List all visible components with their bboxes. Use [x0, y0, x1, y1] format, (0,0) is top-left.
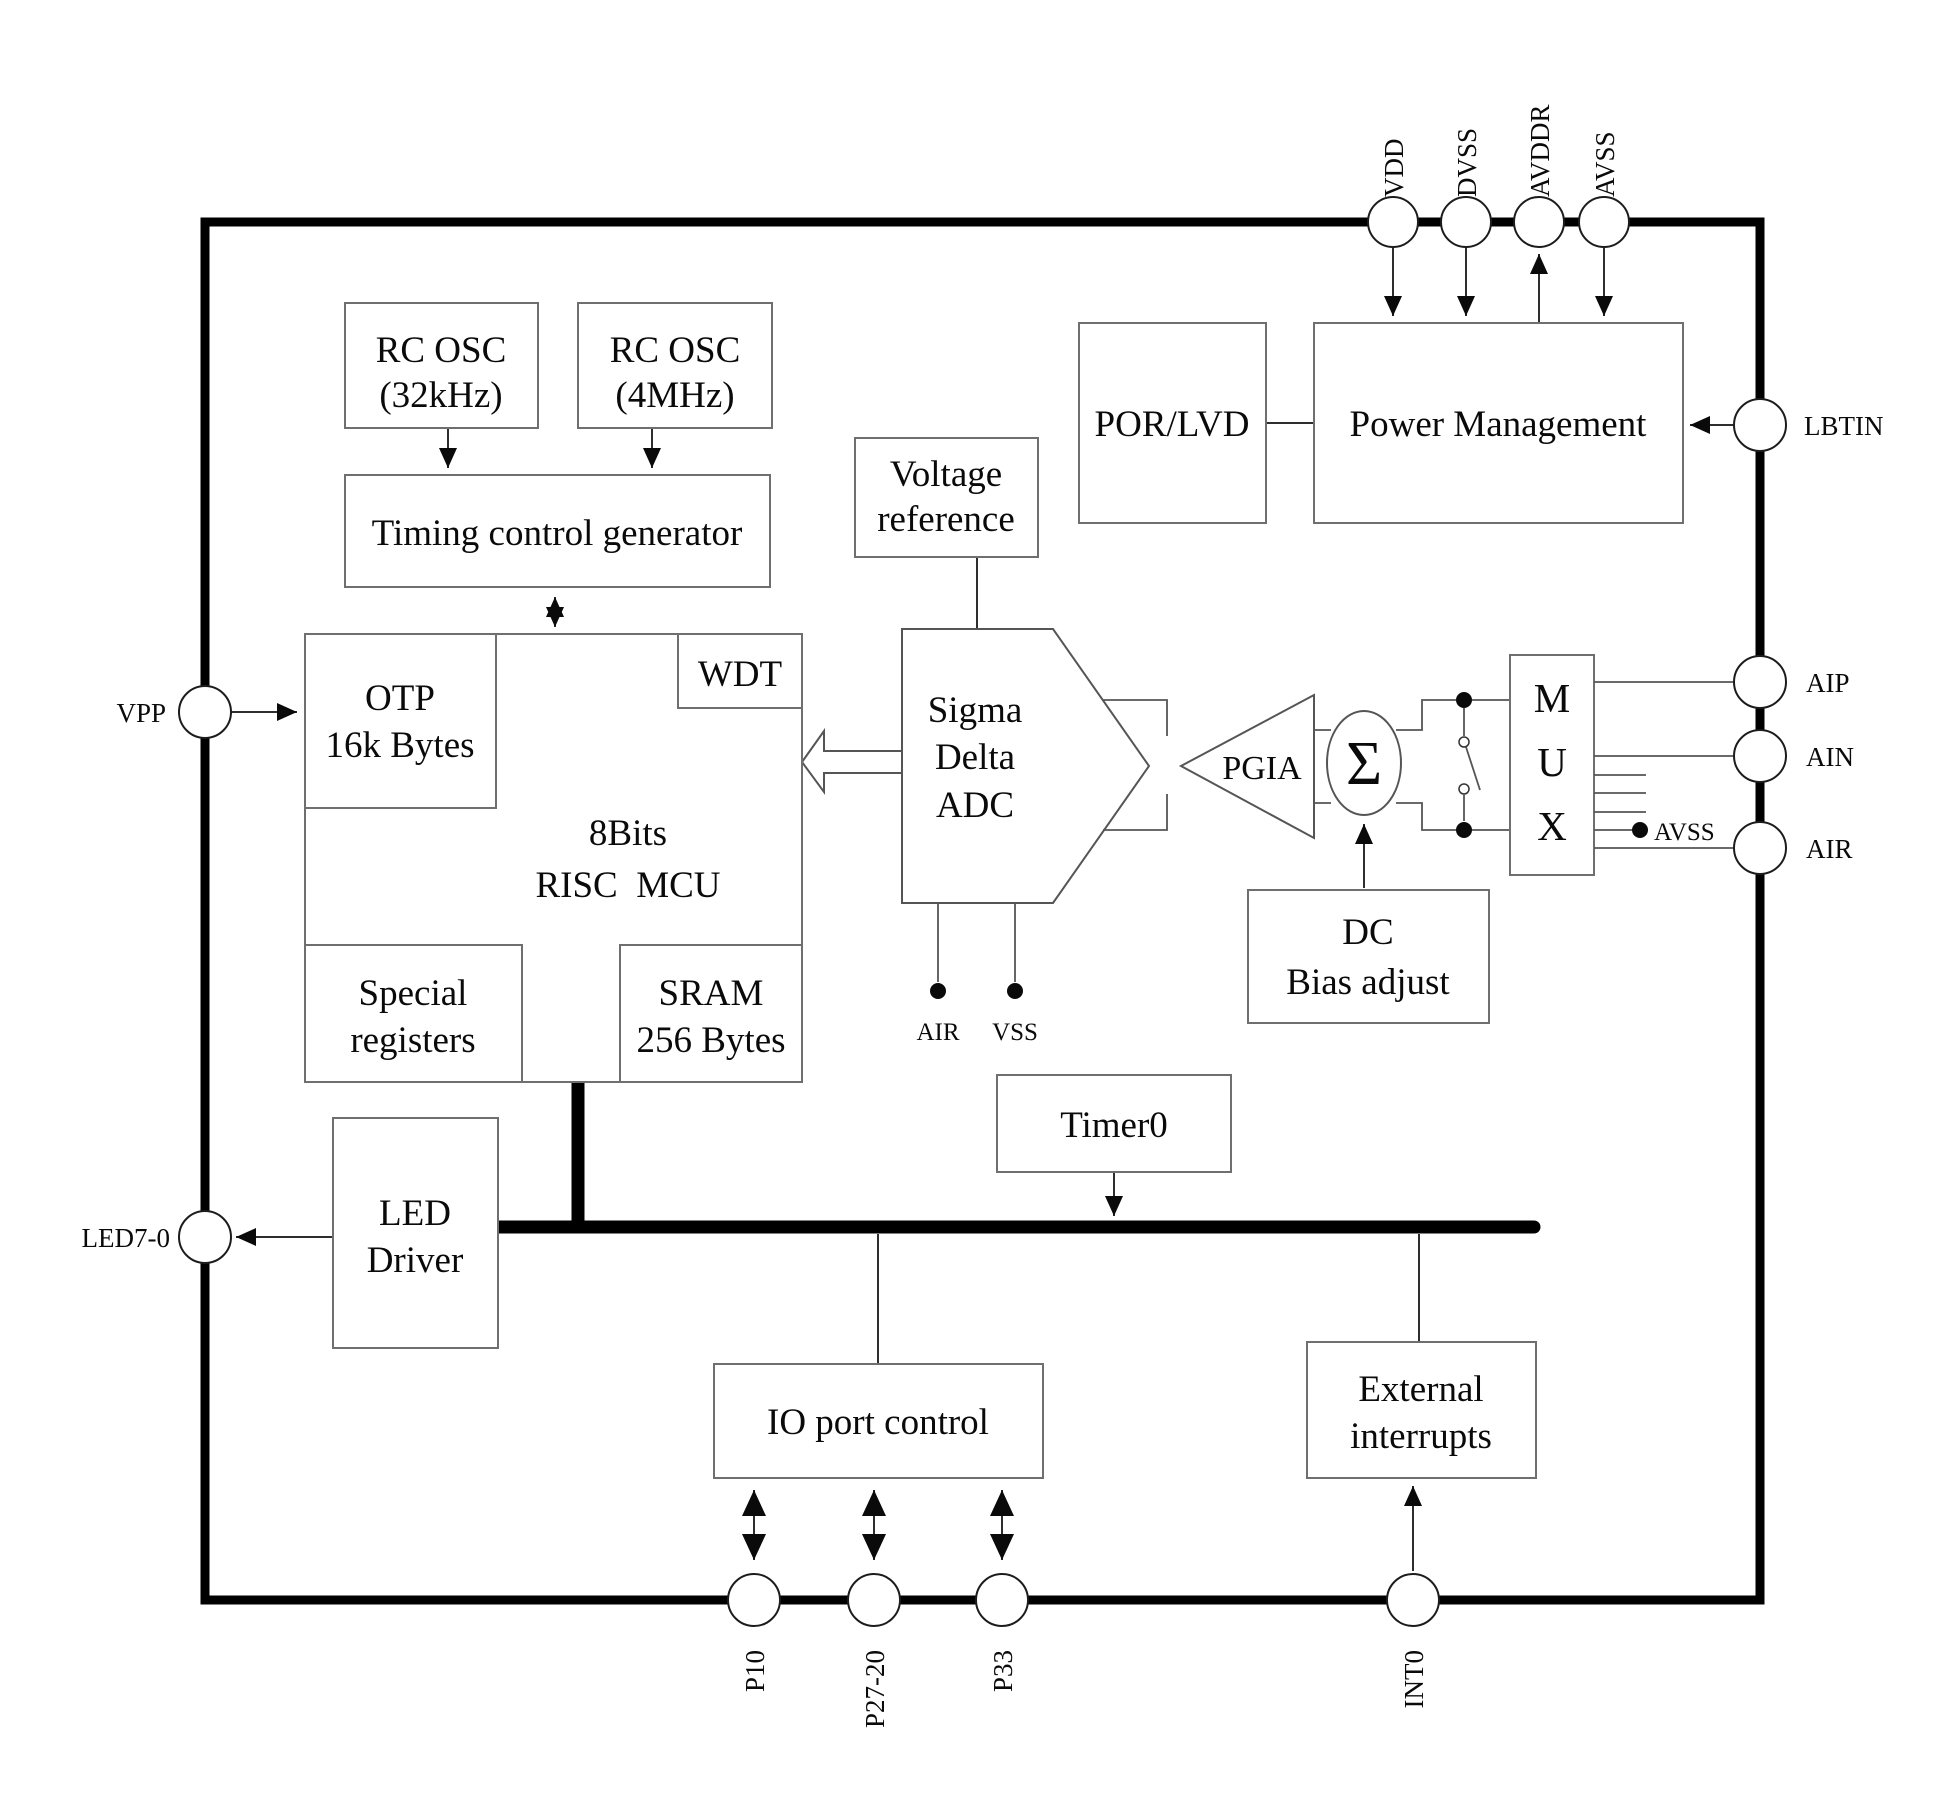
- led-driver-label-2: Driver: [367, 1240, 464, 1281]
- adc-vss-label: VSS: [992, 1019, 1038, 1046]
- pin-p27-20-pad: [848, 1574, 900, 1626]
- pin-air-label: AIR: [1806, 834, 1853, 864]
- pin-avddr-label: AVDDR: [1525, 104, 1555, 197]
- otp-label-2: 16k Bytes: [325, 725, 474, 766]
- pin-p33-label: P33: [988, 1650, 1018, 1692]
- pin-aip: AIP: [1734, 656, 1850, 708]
- block-external-interrupts: External interrupts: [1307, 1342, 1536, 1478]
- voltage-reference-label-2: reference: [877, 499, 1015, 540]
- block-por-lvd: POR/LVD: [1079, 323, 1266, 523]
- adc-to-mcu-block-arrow-icon: [802, 731, 902, 792]
- pin-lbtin-label: LBTIN: [1804, 411, 1883, 441]
- sigma-symbol: Σ: [1346, 730, 1382, 798]
- adc-label-1: Sigma: [928, 690, 1023, 731]
- rc-osc-32k-label-2: (32kHz): [379, 375, 502, 416]
- pin-avss: AVSS: [1579, 131, 1629, 247]
- timer0-label: Timer0: [1060, 1105, 1168, 1146]
- adc-air-label: AIR: [916, 1019, 959, 1046]
- pin-aip-label: AIP: [1806, 668, 1850, 698]
- rc-osc-4m-label-1: RC OSC: [610, 330, 741, 371]
- pin-dvss-label: DVSS: [1452, 128, 1482, 197]
- adc-label-2: Delta: [935, 737, 1015, 778]
- switch-contact-bottom-icon: [1459, 784, 1469, 794]
- pin-p27-20-label: P27-20: [860, 1650, 890, 1728]
- sigma-switch-wire-bottom: [1396, 803, 1456, 830]
- pin-vdd: VDD: [1368, 139, 1418, 248]
- block-voltage-reference: Voltage reference: [855, 438, 1038, 557]
- pin-p27-20: P27-20: [848, 1574, 900, 1728]
- sram-label-1: SRAM: [659, 973, 764, 1014]
- voltage-reference-label-1: Voltage: [890, 454, 1002, 495]
- adc-air-node-icon: [930, 983, 946, 999]
- diagram-canvas: RC OSC (32kHz) RC OSC (4MHz) Timing cont…: [0, 0, 1944, 1808]
- pin-p10-pad: [728, 1574, 780, 1626]
- special-registers-label-2: registers: [350, 1020, 475, 1061]
- chip-block-diagram: RC OSC (32kHz) RC OSC (4MHz) Timing cont…: [0, 0, 1944, 1808]
- block-io-port-control: IO port control: [714, 1364, 1043, 1478]
- pin-ain-label: AIN: [1806, 742, 1854, 772]
- led-driver-label-1: LED: [379, 1193, 451, 1234]
- pin-avddr-pad: [1514, 197, 1564, 247]
- block-dc-bias: DC Bias adjust: [1248, 890, 1489, 1023]
- pin-lbtin: LBTIN: [1734, 399, 1883, 451]
- timing-control-label: Timing control generator: [372, 513, 743, 554]
- mux-label-m: M: [1534, 675, 1570, 721]
- mux-avss-label: AVSS: [1654, 819, 1715, 846]
- external-interrupts-box: [1307, 1342, 1536, 1478]
- mcu-label-2: RISC MCU: [535, 865, 720, 906]
- pin-p10-label: P10: [740, 1650, 770, 1692]
- pin-int0: INT0: [1387, 1574, 1439, 1708]
- switch-blade-icon: [1466, 747, 1480, 790]
- adc-label-3: ADC: [936, 785, 1014, 826]
- block-mux: M U X AVSS: [1510, 655, 1734, 875]
- dc-bias-label-1: DC: [1342, 912, 1393, 953]
- pin-dvss-pad: [1441, 197, 1491, 247]
- pin-vpp-pad: [179, 686, 231, 738]
- switch-contact-top-icon: [1459, 737, 1469, 747]
- power-management-label: Power Management: [1350, 404, 1648, 445]
- pin-avss-pad: [1579, 197, 1629, 247]
- block-mcu: OTP 16k Bytes WDT 8Bits RISC MCU Special…: [305, 634, 802, 1082]
- block-sigma-delta-adc: Sigma Delta ADC AIR VSS: [902, 629, 1167, 1046]
- rc-osc-4m-label-2: (4MHz): [615, 375, 734, 416]
- block-rc-osc-32k: RC OSC (32kHz): [345, 303, 538, 428]
- pin-aip-pad: [1734, 656, 1786, 708]
- pin-p10: P10: [728, 1574, 780, 1692]
- switch-node-bottom-icon: [1456, 822, 1472, 838]
- pin-avddr: AVDDR: [1514, 104, 1564, 247]
- pin-p33: P33: [976, 1574, 1028, 1692]
- pin-lbtin-pad: [1734, 399, 1786, 451]
- sram-label-2: 256 Bytes: [636, 1020, 785, 1061]
- pin-ain: AIN: [1734, 730, 1854, 782]
- io-port-control-label: IO port control: [767, 1402, 989, 1443]
- pin-dvss: DVSS: [1441, 128, 1491, 247]
- block-rc-osc-4m: RC OSC (4MHz): [578, 303, 772, 428]
- pin-p33-pad: [976, 1574, 1028, 1626]
- otp-box: [305, 634, 496, 808]
- mux-avss-node-icon: [1632, 822, 1648, 838]
- pin-led7-0-pad: [179, 1211, 231, 1263]
- pin-int0-label: INT0: [1399, 1650, 1429, 1708]
- block-timer0: Timer0: [997, 1075, 1231, 1172]
- pgia-label: PGIA: [1222, 750, 1302, 787]
- block-led-driver: LED Driver: [333, 1118, 498, 1348]
- block-sigma-node: Σ: [1327, 711, 1401, 815]
- pin-vpp-label: VPP: [116, 698, 166, 728]
- dc-bias-box: [1248, 890, 1489, 1023]
- block-power-management: Power Management: [1314, 323, 1683, 523]
- pin-vpp: VPP: [116, 686, 231, 738]
- pin-air: AIR: [1734, 822, 1853, 874]
- pin-vdd-label: VDD: [1379, 139, 1409, 198]
- pin-led7-0-label: LED7-0: [82, 1223, 170, 1253]
- pin-avss-label: AVSS: [1590, 131, 1620, 197]
- adc-vss-node-icon: [1007, 983, 1023, 999]
- external-interrupts-label-1: External: [1358, 1369, 1483, 1410]
- mcu-label-1: 8Bits: [589, 813, 667, 854]
- input-switch: [1396, 692, 1510, 838]
- switch-node-top-icon: [1456, 692, 1472, 708]
- dc-bias-label-2: Bias adjust: [1286, 962, 1450, 1003]
- mux-label-x: X: [1537, 803, 1567, 849]
- block-pgia: PGIA: [1181, 695, 1331, 838]
- pin-vdd-pad: [1368, 197, 1418, 247]
- por-lvd-label: POR/LVD: [1095, 404, 1250, 445]
- pin-ain-pad: [1734, 730, 1786, 782]
- pin-air-pad: [1734, 822, 1786, 874]
- otp-label-1: OTP: [365, 678, 435, 719]
- wdt-label: WDT: [698, 654, 782, 695]
- sigma-switch-wire-top: [1396, 700, 1456, 730]
- pin-led7-0: LED7-0: [82, 1211, 231, 1263]
- rc-osc-32k-label-1: RC OSC: [376, 330, 507, 371]
- pin-int0-pad: [1387, 1574, 1439, 1626]
- block-timing-control: Timing control generator: [345, 475, 770, 587]
- special-registers-label-1: Special: [359, 973, 468, 1014]
- external-interrupts-label-2: interrupts: [1350, 1416, 1492, 1457]
- mux-label-u: U: [1537, 739, 1567, 785]
